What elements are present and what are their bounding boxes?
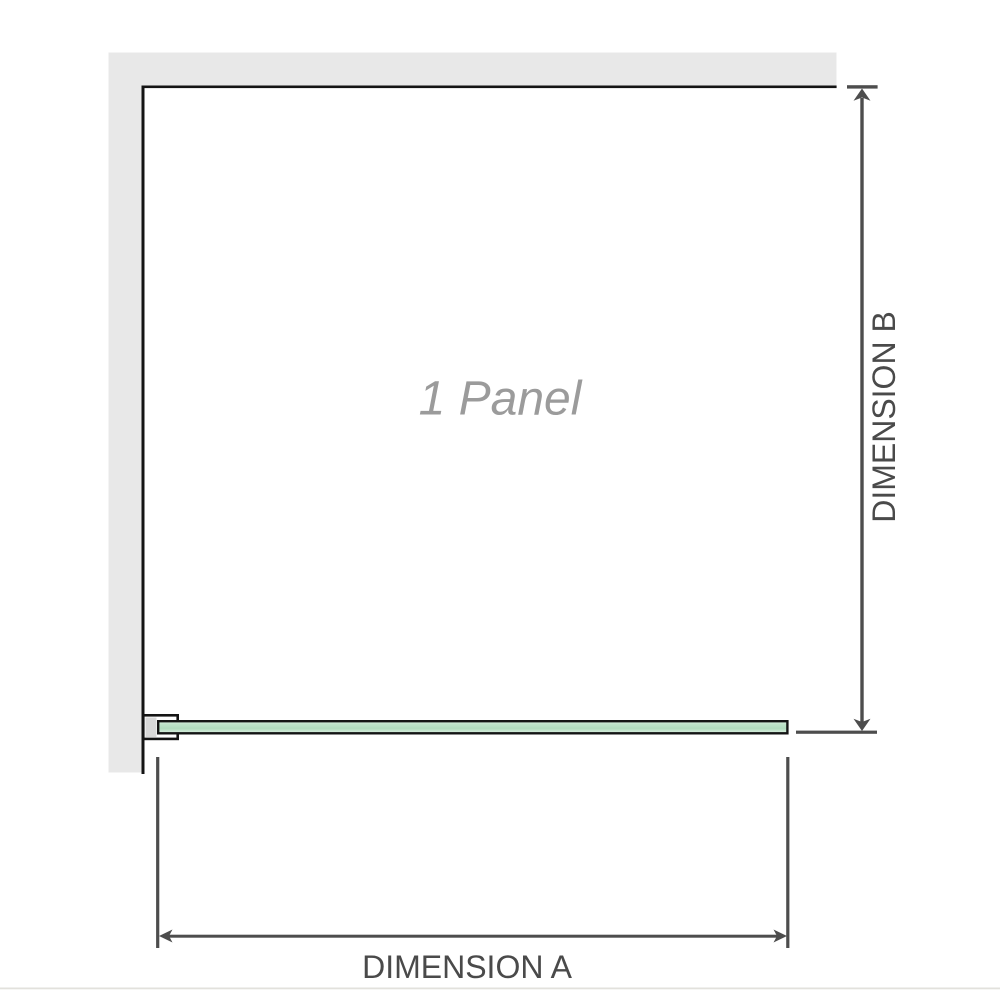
svg-text:DIMENSION A: DIMENSION A [362, 949, 572, 985]
svg-text:1 Panel: 1 Panel [419, 373, 583, 426]
svg-text:DIMENSION B: DIMENSION B [866, 311, 902, 523]
